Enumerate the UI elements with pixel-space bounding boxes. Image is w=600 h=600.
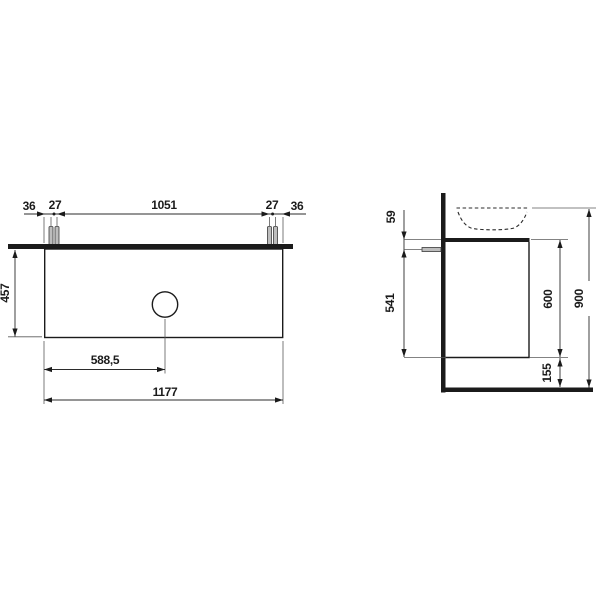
dim-label-59: 59 bbox=[384, 210, 398, 223]
front-view: 36 27 1051 27 36 457 bbox=[0, 198, 306, 404]
front-top-dimension-chain: 36 27 1051 27 36 bbox=[23, 198, 306, 243]
countertop-side bbox=[446, 238, 530, 242]
floor-line bbox=[441, 388, 593, 393]
wall-fixing-bolt bbox=[422, 248, 441, 252]
dim-label-27-right: 27 bbox=[266, 198, 279, 212]
dim-label-27-left: 27 bbox=[49, 198, 62, 212]
dim-label-900: 900 bbox=[572, 288, 586, 308]
fixing-stud-1 bbox=[49, 227, 53, 245]
dim-label-600: 600 bbox=[541, 289, 555, 309]
fixing-stud-3 bbox=[268, 227, 272, 245]
technical-drawing-canvas: 36 27 1051 27 36 457 bbox=[0, 0, 600, 600]
cabinet-front-outline bbox=[45, 249, 283, 338]
side-cabinet-height-dimension: 600 bbox=[530, 240, 568, 358]
front-total-width-dimension: 1177 bbox=[44, 341, 283, 404]
fixing-stud-2 bbox=[55, 227, 59, 245]
technical-drawing-page: 36 27 1051 27 36 457 bbox=[0, 0, 600, 600]
dim-label-36-right: 36 bbox=[291, 199, 304, 213]
wall-line bbox=[441, 193, 446, 393]
dim-label-457: 457 bbox=[0, 283, 12, 303]
countertop-front bbox=[8, 244, 293, 249]
dim-label-1051: 1051 bbox=[151, 198, 177, 212]
dim-label-588-5: 588,5 bbox=[91, 353, 120, 367]
faucet-fixing-studs bbox=[49, 227, 278, 245]
dim-label-155: 155 bbox=[540, 363, 554, 383]
dim-label-36-left: 36 bbox=[23, 199, 36, 213]
washbasin-dashed-outline bbox=[457, 208, 529, 230]
side-left-dimensions: 59 541 bbox=[383, 210, 446, 358]
dim-label-541: 541 bbox=[383, 293, 397, 313]
side-plinth-dimension: 155 bbox=[540, 358, 563, 387]
side-view: 59 541 600 155 900 bbox=[383, 193, 596, 393]
dim-label-1177: 1177 bbox=[153, 385, 178, 399]
front-height-dimension: 457 bbox=[0, 250, 42, 337]
fixing-stud-4 bbox=[274, 227, 278, 245]
